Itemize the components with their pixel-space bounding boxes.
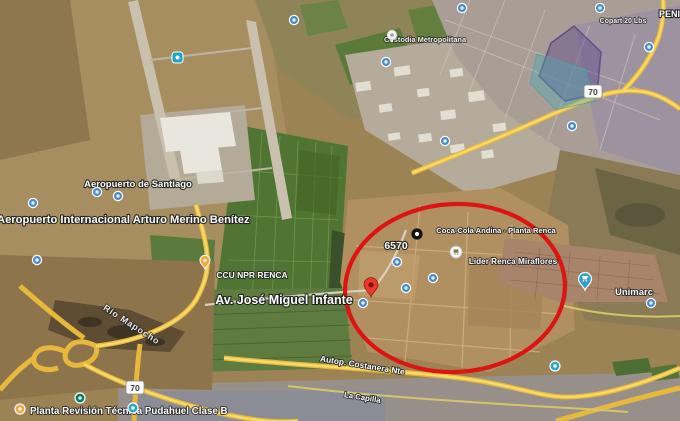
label-coca-cola[interactable]: Coca-Cola Andina - Planta Renca — [436, 226, 556, 235]
map-canvas[interactable]: Aeropuerto de Santiago Aeropuerto Intern… — [0, 0, 680, 421]
label-unimarc[interactable]: Unimarc — [615, 287, 653, 298]
poi-dot-icon[interactable] — [595, 3, 604, 12]
poi-dot-icon[interactable] — [392, 257, 401, 266]
poi-dot-icon[interactable] — [32, 255, 41, 264]
poi-dot-icon[interactable] — [92, 187, 101, 196]
poi-dot-icon[interactable] — [358, 298, 367, 307]
poi-dot-icon[interactable] — [567, 121, 576, 130]
poi-dot-icon[interactable] — [644, 42, 653, 51]
lider-store-pin-icon[interactable] — [450, 246, 462, 258]
teal-circle-pin-icon[interactable] — [550, 361, 560, 371]
orange-circle-pin-icon[interactable] — [15, 404, 25, 414]
poi-dot-icon[interactable] — [28, 198, 37, 207]
poi-dot-icon[interactable] — [381, 57, 390, 66]
teal-square-icon[interactable] — [172, 52, 183, 63]
green-circle-pin-icon[interactable] — [75, 393, 85, 403]
poi-dot-icon[interactable] — [440, 136, 449, 145]
poi-dot-icon[interactable] — [401, 283, 410, 292]
route-shield-70-west[interactable]: 70 — [126, 381, 144, 394]
terminal-building — [160, 112, 236, 152]
poi-dot-icon[interactable] — [113, 191, 122, 200]
label-lider[interactable]: Lider Renca Miraflores — [469, 257, 558, 266]
shield-number: 70 — [130, 383, 140, 393]
poi-dot-icon[interactable] — [428, 273, 437, 282]
teal-circle-pin-icon[interactable] — [128, 403, 138, 413]
poi-dot-icon[interactable] — [457, 3, 466, 12]
label-copart[interactable]: Copart 20 Lbs — [600, 18, 647, 25]
label-airport-full[interactable]: Aeropuerto Internacional Arturo Merino B… — [0, 214, 250, 226]
label-avenue[interactable]: Av. José Miguel Infante — [215, 293, 353, 307]
poi-dot-icon[interactable] — [646, 298, 655, 307]
label-peni-partial[interactable]: PENI — [659, 9, 680, 19]
poi-dot-icon[interactable] — [289, 15, 298, 24]
shield-number: 70 — [588, 87, 598, 97]
label-ccu-plant[interactable]: CCU NPR RENCA — [216, 270, 287, 280]
route-shield-70-northeast[interactable]: 70 — [584, 85, 602, 98]
black-dot-marker[interactable] — [411, 228, 422, 239]
label-street-number[interactable]: 6570 — [384, 240, 408, 252]
